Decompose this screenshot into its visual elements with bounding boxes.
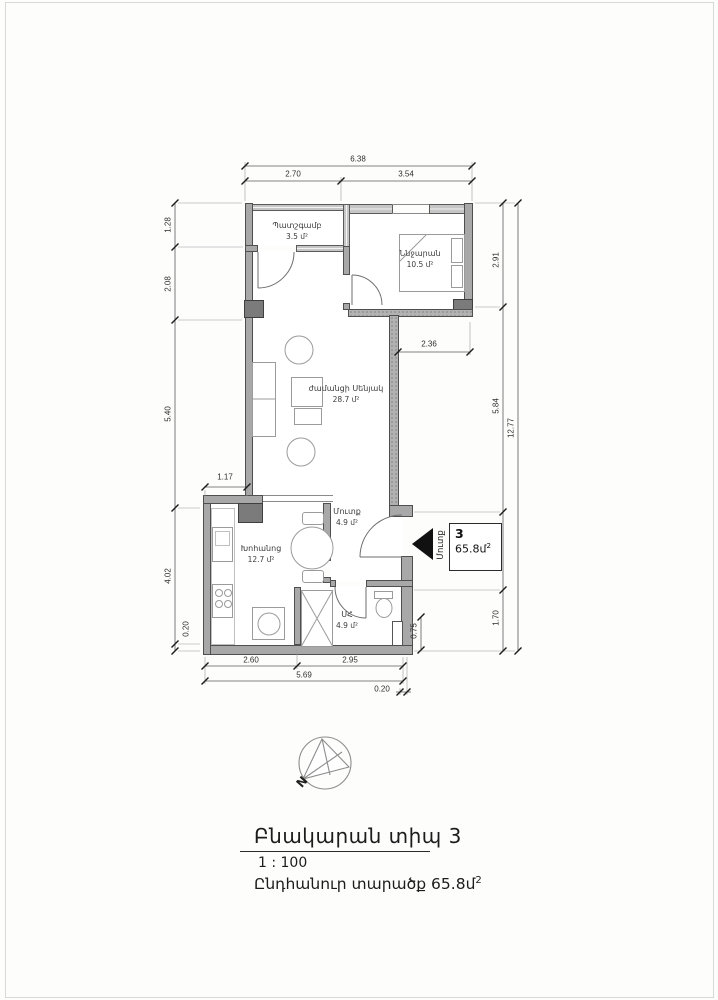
wall-living-right <box>389 315 399 508</box>
balcony-railing <box>245 204 345 211</box>
dimension-label: 1.17 <box>217 473 233 482</box>
sofa <box>252 362 276 437</box>
bath-niche <box>392 621 403 647</box>
wall-entry-top <box>389 505 413 517</box>
dimension-label: 2.95 <box>342 656 358 665</box>
north-label: N <box>293 774 310 791</box>
plan-total-area: Ընդհանուր տարածք 65.8մ2 <box>240 875 500 893</box>
side-table <box>294 408 322 425</box>
room-label-hall: Մուտք 4.9 մ² <box>333 506 361 528</box>
toilet-tank <box>374 591 393 599</box>
title-underline <box>240 851 430 852</box>
stove <box>212 584 233 618</box>
dimension-label: 1.70 <box>492 610 501 626</box>
unit-number: 3 <box>455 526 501 541</box>
wall-kitchen-left <box>203 497 211 655</box>
plan-scale: 1 : 100 <box>240 855 500 871</box>
dimension-label: 1.28 <box>164 217 173 233</box>
shower <box>301 590 333 647</box>
wall-kitchen-bath <box>294 587 301 645</box>
dimension-label: 2.70 <box>285 170 301 179</box>
unit-area: 65.8մ2 <box>455 541 501 556</box>
entry-arrow-icon <box>412 528 433 560</box>
wall-balcony-stub <box>245 245 258 252</box>
dimension-label: 2.91 <box>492 252 501 268</box>
wall-hall-bath-left <box>330 580 336 587</box>
room-label-kitchen: Խոհանոց 12.7 մ² <box>241 543 282 565</box>
dining-chair-1 <box>302 512 324 525</box>
dimension-label: 4.02 <box>164 568 173 584</box>
drawing-sheet: Պատշգամբ 3.5 մ² Ննջարան 10.5 մ² ժամանցի … <box>0 0 718 1000</box>
column-kitchen <box>238 503 263 523</box>
dimension-label: 5.84 <box>492 398 501 414</box>
dimension-label: 2.60 <box>243 656 259 665</box>
unit-badge: 3 65.8մ2 <box>449 523 502 571</box>
room-label-bedroom: Ննջարան 10.5 մ² <box>399 248 440 270</box>
washing-machine <box>252 607 285 640</box>
room-label-bath: ՍՀ 4.9 մ² <box>336 609 358 631</box>
wall-hall-bath-right <box>366 580 413 587</box>
balcony-window <box>296 245 345 252</box>
bedroom-window-left <box>347 204 393 214</box>
pillow-2 <box>451 265 463 288</box>
dimension-label: 0.75 <box>410 623 419 639</box>
kitchen-passage-lintel <box>263 495 333 502</box>
dimension-label: 5.40 <box>164 406 173 422</box>
entry-direction-label: Մուտք <box>436 530 446 560</box>
room-label-living: ժամանցի Սենյակ 28.7 մ² <box>309 383 384 405</box>
wall-kitchen-hall <box>323 503 331 561</box>
dimension-label: 12.77 <box>507 418 516 438</box>
plan-title: Բնակարան տիպ 3 <box>240 824 500 848</box>
balcony-bedroom-window <box>343 204 350 248</box>
page: { "rooms": { "balcony": {"name": "Պատշգա… <box>0 0 718 1000</box>
dimension-label: 5.69 <box>296 671 312 680</box>
title-block: Բնակարան տիպ 3 1 : 100 Ընդհանուր տարածք … <box>240 824 500 893</box>
dining-chair-2 <box>302 570 324 583</box>
dimension-label: 0.20 <box>182 621 191 637</box>
sink-basin <box>215 531 230 546</box>
bedroom-top-wall-mid <box>392 204 430 214</box>
dimension-label: 2.08 <box>164 276 173 292</box>
room-label-balcony: Պատշգամբ 3.5 մ² <box>272 220 321 242</box>
wall-bedroom-left <box>343 246 350 275</box>
wall-bedroom-bottom <box>348 309 473 317</box>
dimension-label: 0.20 <box>374 685 390 694</box>
dimension-label: 2.36 <box>421 340 437 349</box>
dimension-label: 3.54 <box>398 170 414 179</box>
column-left <box>244 300 264 318</box>
pillow-1 <box>451 238 463 263</box>
dimension-label: 6.38 <box>350 155 366 164</box>
